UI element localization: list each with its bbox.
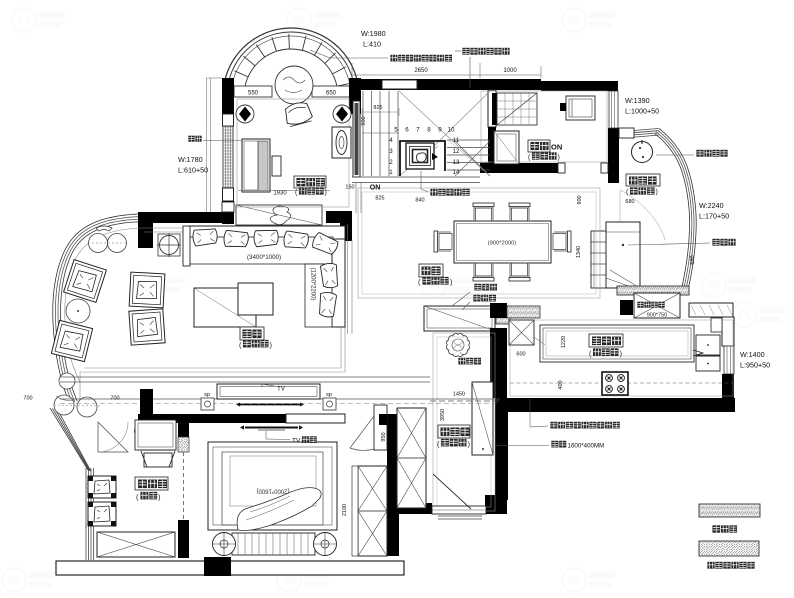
svg-text:ON: ON bbox=[551, 143, 562, 152]
svg-text:W:1780: W:1780 bbox=[178, 155, 203, 164]
svg-text:600: 600 bbox=[516, 352, 525, 358]
svg-text:840: 840 bbox=[415, 198, 424, 204]
svg-text:700: 700 bbox=[110, 396, 119, 402]
svg-text:11: 11 bbox=[453, 137, 460, 144]
svg-text:680: 680 bbox=[625, 199, 634, 205]
svg-text:(3400*1000): (3400*1000) bbox=[247, 254, 281, 261]
svg-text:(900*2000): (900*2000) bbox=[488, 241, 517, 247]
svg-text:1: 1 bbox=[389, 169, 393, 176]
svg-text:1000: 1000 bbox=[503, 68, 517, 74]
svg-text:1340: 1340 bbox=[576, 246, 582, 258]
svg-text:3: 3 bbox=[389, 148, 393, 155]
svg-text:7: 7 bbox=[416, 127, 420, 134]
svg-text:L:170+50: L:170+50 bbox=[699, 212, 729, 221]
svg-text:1220: 1220 bbox=[561, 336, 567, 348]
svg-text:5: 5 bbox=[394, 127, 398, 134]
svg-text:TV: TV bbox=[277, 387, 285, 393]
svg-text:2100: 2100 bbox=[342, 504, 348, 516]
svg-text:1930: 1930 bbox=[273, 191, 287, 197]
svg-text:8: 8 bbox=[427, 127, 431, 134]
svg-text:4: 4 bbox=[389, 137, 393, 144]
svg-text:700: 700 bbox=[23, 396, 32, 402]
svg-text:900: 900 bbox=[361, 116, 367, 125]
svg-text:L:610+50: L:610+50 bbox=[178, 166, 208, 175]
svg-text:L:950+50: L:950+50 bbox=[740, 361, 770, 370]
svg-text:12: 12 bbox=[453, 148, 460, 155]
svg-text:(1200*2200): (1200*2200) bbox=[310, 267, 316, 300]
svg-text:400: 400 bbox=[558, 380, 564, 389]
svg-text:): ) bbox=[558, 155, 560, 162]
svg-text:9: 9 bbox=[438, 127, 442, 134]
svg-text:): ) bbox=[656, 189, 658, 196]
svg-text:W:2240: W:2240 bbox=[699, 201, 724, 210]
svg-text:10: 10 bbox=[448, 127, 455, 134]
svg-text:550: 550 bbox=[248, 91, 259, 97]
svg-text:W:1390: W:1390 bbox=[625, 96, 650, 105]
svg-text:sp: sp bbox=[204, 392, 210, 398]
svg-text:13: 13 bbox=[453, 159, 460, 166]
svg-text:6: 6 bbox=[405, 127, 409, 134]
svg-text:2650: 2650 bbox=[414, 68, 428, 74]
svg-text:680: 680 bbox=[690, 255, 696, 264]
svg-text:3950: 3950 bbox=[440, 409, 446, 421]
svg-text:TV: TV bbox=[292, 438, 301, 445]
svg-text:900: 900 bbox=[577, 195, 583, 204]
svg-text:2: 2 bbox=[389, 159, 393, 166]
svg-text:950: 950 bbox=[381, 432, 387, 441]
svg-text:825: 825 bbox=[373, 105, 382, 111]
svg-text:150: 150 bbox=[345, 185, 354, 191]
svg-text:1450: 1450 bbox=[453, 392, 465, 398]
svg-text:900*750: 900*750 bbox=[647, 313, 668, 319]
svg-text:ON: ON bbox=[370, 185, 381, 192]
svg-text:825: 825 bbox=[375, 196, 384, 202]
svg-text:W:1980: W:1980 bbox=[361, 29, 386, 38]
svg-text:L:410: L:410 bbox=[363, 40, 381, 49]
svg-text:650: 650 bbox=[326, 91, 337, 97]
svg-text:1600*400MM: 1600*400MM bbox=[568, 443, 605, 450]
svg-text:(2000*1600): (2000*1600) bbox=[256, 488, 289, 494]
svg-text:W:1400: W:1400 bbox=[740, 350, 765, 359]
svg-text:sp: sp bbox=[326, 392, 332, 398]
svg-text:L:1000+50: L:1000+50 bbox=[625, 107, 659, 116]
